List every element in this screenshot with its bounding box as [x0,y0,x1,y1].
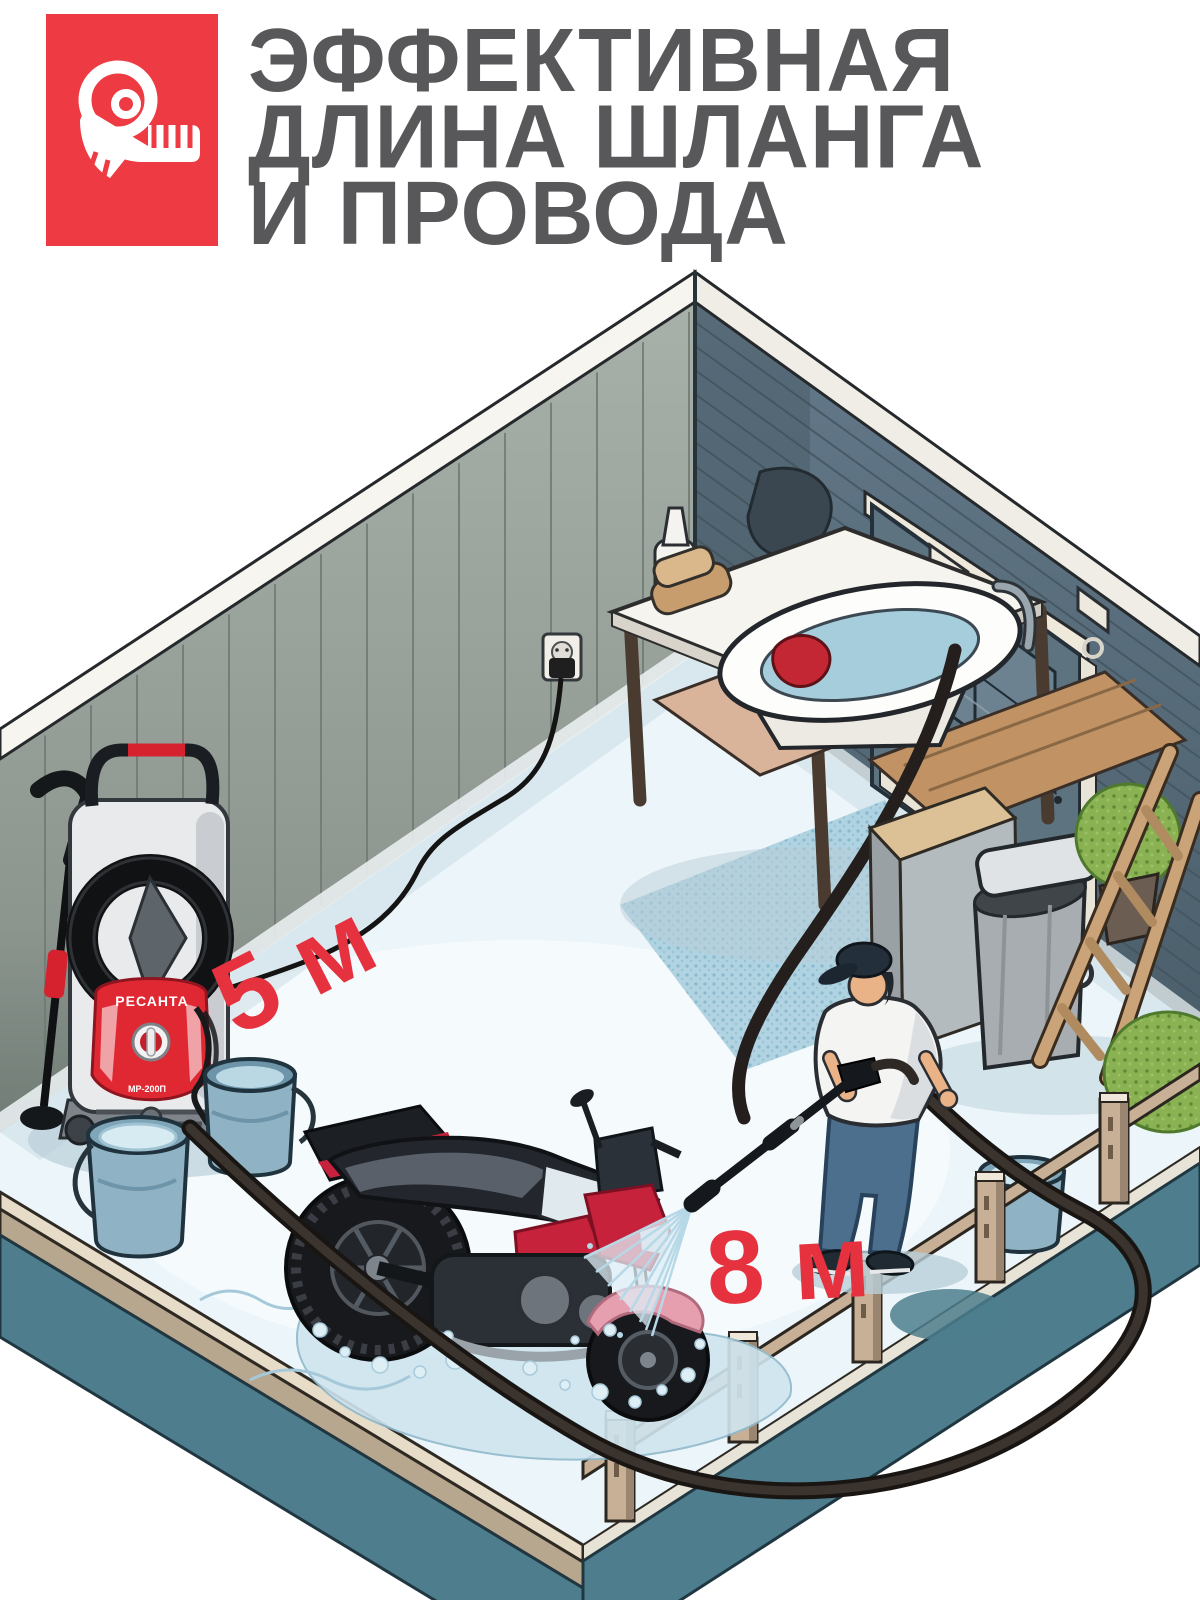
header: ЭФФЕКТИВНАЯ ДЛИНА ШЛАНГА И ПРОВОДА [0,0,1200,270]
plug [549,658,575,678]
model-label: МР-200П [128,1084,166,1094]
hose-length-label: 8 м [703,1203,873,1327]
tape-measure-icon [60,48,204,212]
power-dial [147,1028,155,1056]
page-title: ЭФФЕКТИВНАЯ ДЛИНА ШЛАНГА И ПРОВОДА [248,22,984,252]
brand-label: РЕСАНТА [115,993,188,1009]
power-outlet [543,634,581,680]
brand-square [46,14,218,246]
product-infographic: РЕСАНТА МР-200П [0,0,1200,1600]
